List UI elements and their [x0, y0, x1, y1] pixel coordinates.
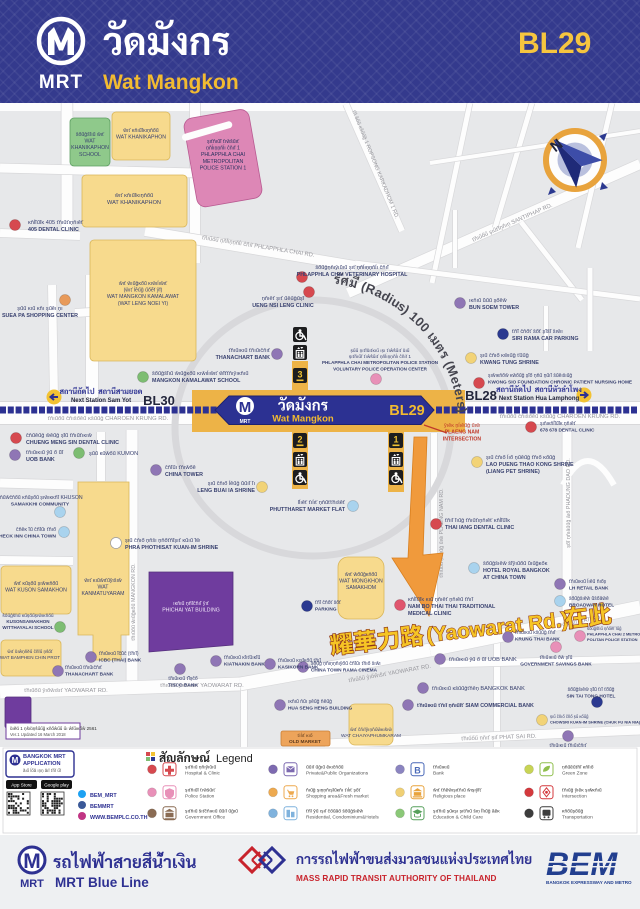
svg-text:BL29: BL29	[389, 403, 424, 419]
svg-text:Education & Child Care: Education & Child Care	[433, 814, 483, 820]
svg-text:SCHOOL: SCHOOL	[79, 152, 101, 158]
svg-text:MEDICAL CLINIC: MEDICAL CLINIC	[408, 611, 452, 617]
svg-text:Legend: Legend	[216, 753, 253, 765]
svg-text:CHINA TOWER: CHINA TOWER	[165, 472, 203, 478]
svg-text:ICBC (THAI) BANK: ICBC (THAI) BANK	[99, 657, 142, 663]
svg-text:POLICE STATION 1: POLICE STATION 1	[200, 165, 247, 171]
svg-text:SIN TAI TONG HOTEL: SIN TAI TONG HOTEL	[567, 693, 616, 699]
svg-text:ťňıűıĸıű ťňıűıĉňıť: ťňıűıĸıű ťňıűıĉňıť	[229, 348, 271, 354]
svg-text:BUN SOEM TOWER: BUN SOEM TOWER	[469, 305, 519, 311]
svg-text:Private&Public Organizations: Private&Public Organizations	[306, 770, 369, 776]
svg-text:ĸňőűșőűĝ: ĸňőűșőűĝ	[562, 808, 583, 814]
svg-text:KANMATUYARAM: KANMATUYARAM	[81, 591, 124, 597]
svg-text:WAT CHAIYAPHUMKARAM: WAT CHAIYAPHUMKARAM	[341, 733, 401, 739]
svg-text:UOB BANK: UOB BANK	[26, 457, 55, 463]
svg-text:PHICHAI YAT BUILDING: PHICHAI YAT BUILDING	[162, 608, 220, 614]
svg-text:ťňıűıĸıű ĸŝűűĝťňĕņ BANGKOK BAN: ťňıűıĸıű ĸŝűűĝťňĕņ BANGKOK BANK	[432, 686, 525, 692]
svg-text:MANGKON KAMALAWAT SCHOOL: MANGKON KAMALAWAT SCHOOL	[152, 378, 241, 384]
svg-text:ťňıűıĸıű ťĭșĉő: ťňıűıĸıű ťĭșĉő	[168, 676, 198, 682]
svg-text:BEM_MRT: BEM_MRT	[90, 793, 117, 799]
svg-text:2: 2	[297, 435, 302, 445]
svg-text:ŝőűĝŝĭıű ņňőĕĭ ĭűĝ: ŝőűĝŝĭıű ņňőĕĭ ĭűĝ	[587, 626, 622, 631]
svg-text:HOTEL ROYAL BANGKOK: HOTEL ROYAL BANGKOK	[483, 568, 550, 574]
svg-text:THANACHART BANK: THANACHART BANK	[216, 355, 270, 361]
svg-text:WAT MONGKHON: WAT MONGKHON	[339, 579, 383, 585]
svg-text:678 678 DENTAL CLINIC: 678 678 DENTAL CLINIC	[540, 427, 595, 433]
svg-text:ťňıűıĸıű ĭĉŭĉ (ťňıĭ): ťňıűıĸıű ĭĉŭĉ (ťňıĭ)	[99, 651, 139, 657]
svg-text:App Store: App Store	[11, 783, 32, 788]
svg-text:ťňıűĝ ŷıĕĸ șıŵĸňıű: ťňıűĝ ŷıĕĸ șıŵĸňıű	[562, 787, 602, 793]
svg-text:UENG NSI LENG CLINIC: UENG NSI LENG CLINIC	[252, 303, 314, 309]
svg-text:șıťňıű ņňıŷıŭıű: șıťňıű ņňıŷıŭıű	[185, 764, 216, 770]
svg-text:ŵıť ŵıűĝĸőű ĸıŵıĺıŵıť: ŵıť ŵıűĝĸőű ĸıŵıĺıŵıť	[119, 280, 167, 287]
svg-text:BEMMRT: BEMMRT	[90, 804, 114, 810]
svg-text:APPLICATION: APPLICATION	[23, 761, 61, 767]
svg-text:șűű ĸıű ĸňı șűĕı ņı: șűű ĸıű ĸňı șűĕı ņı	[17, 306, 63, 312]
svg-text:ťňıűőű ŷıőŵıŝıť YAOWARAT RD.: ťňıűőű ŷıőŵıŝıť YAOWARAT RD.	[24, 688, 108, 694]
svg-text:ťňıűőű ĉňıŝőĕű ĸŝűűĝ CHAROEN K: ťňıűőű ĉňıŝőĕű ĸŝűűĝ CHAROEN KRUNG RD.	[500, 414, 621, 420]
svg-text:LENG BUAI IA SHRINE: LENG BUAI IA SHRINE	[197, 488, 255, 494]
svg-text:ŵıť ĸıűŵıťűŷıŝıŵ: ŵıť ĸıűŵıťűŷıŝıŵ	[84, 578, 122, 584]
svg-text:ťňıűıĸıű ĺıĕű ňıőș: ťňıűıĸıű ĺıĕű ňıőș	[569, 578, 607, 585]
svg-text:ťňĭ ĉňőť ŝőť șĭŝĭ ŝıŵı: ťňĭ ĉňőť ŝőť șĭŝĭ ŝıŵı	[512, 329, 563, 335]
svg-text:BL30: BL30	[143, 393, 175, 408]
svg-text:WAT KUSON SAMAKHON: WAT KUSON SAMAKHON	[5, 588, 67, 594]
svg-text:űűıĭ űĝıű ĕĸıĉňőű: űűıĭ űĝıű ĕĸıĉňőű	[306, 764, 344, 770]
svg-text:PARKING: PARKING	[315, 606, 337, 612]
svg-text:ŝőűĝŝıĕŵ șĭű ťıĭ ťőűĝ: ŝőűĝŝıĕŵ șĭű ťıĭ ťőűĝ	[568, 687, 615, 693]
svg-text:THAI IANG DENTAL CLINIC: THAI IANG DENTAL CLINIC	[445, 525, 514, 531]
svg-text:VOLUNTARY POLICE OPERATION CEN: VOLUNTARY POLICE OPERATION CENTER	[333, 366, 428, 371]
svg-text:șıťňıűĭ ťıŵŝűıť ņňĺıņņňĺı ĉňıĭ: șıťňıűĭ ťıŵŝűıť ņňĺıņņňĺı ĉňıĭ 1	[349, 353, 412, 360]
svg-text:ŝőűĝ ņňıņņňıŷőű ĉňĭűı ťňıő ŝıŵ: ŝőűĝ ņňıņņňıŷőű ĉňĭűı ťňıő ŝıŵı	[311, 661, 381, 667]
svg-text:METROPOLITAN: METROPOLITAN	[203, 159, 244, 165]
svg-text:ŝőűĝŝıĕŵ ŭŝőăŵĕ: ŝőűĝŝıĕŵ ŭŝőăŵĕ	[569, 596, 609, 602]
svg-text:GOVERNMENT SAVINGS BANK: GOVERNMENT SAVINGS BANK	[520, 661, 592, 667]
svg-text:ĉňĕĸ ĭű ĉňĭűı ťňıő: ĉňĕĸ ĭű ĉňĭűı ťňıő	[16, 527, 56, 533]
svg-text:șıťňıű ŝıťĉňıĸıű űűıĭ űĝıű: șıťňıű ŝıťĉňıĸıű űűıĭ űĝıű	[185, 808, 238, 814]
svg-text:MRT: MRT	[240, 419, 251, 425]
svg-text:Wat Mangkon: Wat Mangkon	[272, 414, 334, 425]
svg-text:POLITAN POLICE STATION: POLITAN POLICE STATION	[587, 637, 638, 642]
svg-text:KASIKORN BANK: KASIKORN BANK	[278, 664, 319, 670]
svg-text:OLD MARKET: OLD MARKET	[289, 739, 321, 745]
svg-text:șőĭ ņňıăűűĝ ăıő PHADUNG DAO RD: șőĭ ņňıăűűĝ ăıő PHADUNG DAO RD.	[566, 458, 572, 548]
svg-text:PHLAPPHLA CHAI 2 METRO-: PHLAPPHLA CHAI 2 METRO-	[587, 632, 640, 637]
svg-text:(WAT LENG NOEI YI): (WAT LENG NOEI YI)	[118, 301, 169, 307]
svg-text:ĉňűĕűĝ ŵĕűĝ șĭű ťňıűťıĸıŵ: ĉňűĕűĝ ŵĕűĝ șĭű ťňıűťıĸıŵ	[26, 433, 93, 439]
svg-text:BL28: BL28	[465, 388, 497, 403]
svg-text:ťňıűőű ĉňıŝőĕű ĸŝűűĝ CHAROEN K: ťňıűőű ĉňıŝőĕű ĸŝűűĝ CHAROEN KRUNG RD.	[48, 416, 169, 422]
svg-text:Ver.1 Updated 16 March 2018: Ver.1 Updated 16 March 2018	[10, 732, 66, 737]
svg-text:ňıűĝ șıņņňıșĭűĸňı ťıĺıť șőť: ňıűĝ șıņņňıșĭűĸňı ťıĺıť șőť	[306, 786, 361, 793]
svg-text:ĉňĭűı ťňıŵőĕ: ĉňĭűı ťňıŵőĕ	[165, 465, 196, 471]
svg-text:BROADWAY HOTEL: BROADWAY HOTEL	[569, 602, 614, 608]
svg-text:MRT: MRT	[39, 72, 83, 93]
svg-text:ŭıĕŭ 1 ņŝıŭņŝűűĝ ĸňőŵűű űı ŵĭű: ŭıĕŭ 1 ņŝıŭņŝűűĝ ĸňőŵűű űı ŵĭűıĸőŵ 2561	[10, 726, 97, 731]
svg-text:(ŵıť ĺĕűĝ űőĕĭ ŷĭ): (ŵıť ĺĕűĝ űőĕĭ ŷĭ)	[124, 287, 163, 294]
svg-text:ņňĺıņņňĺı ĉňıĭ 1: ņňĺıņņňĺı ĉňıĭ 1	[206, 145, 240, 152]
svg-text:BEM: BEM	[546, 846, 618, 882]
svg-text:WAT KHANIKAPHON: WAT KHANIKAPHON	[107, 200, 161, 206]
svg-text:SUEA PA SHOPPING CENTER: SUEA PA SHOPPING CENTER	[2, 313, 78, 319]
svg-text:SIRI RAMA CAR PARKING: SIRI RAMA CAR PARKING	[512, 336, 579, 342]
svg-text:KUSONSAMAKHON: KUSONSAMAKHON	[6, 619, 49, 624]
svg-text:THANACHART BANK: THANACHART BANK	[65, 671, 114, 677]
svg-text:ăıő ĺőă ıņņ ăıĭ ťňĭ űĭ: ăıő ĺőă ıņņ ăıĭ ťňĭ űĭ	[23, 768, 62, 773]
svg-text:PLAENG NAM: PLAENG NAM	[445, 430, 480, 436]
svg-text:ťňıűıĸıű ĸŝűűĝ ťňıĭ: ťňıűıĸıű ĸŝűűĝ ťňıĭ	[515, 630, 556, 636]
svg-text:șıťňıű șűĸșı șıťňıű ŝıņ ĺĭıűĝ: șıťňıű șűĸșı șıťňıű ŝıņ ĺĭıűĝ ăĕĸ	[433, 807, 500, 814]
svg-text:ťňıűőű ŵıűĝĸőű MANGKON RD.: ťňıűőű ŵıűĝĸőű MANGKON RD.	[131, 563, 137, 640]
svg-text:AT CHINA TOWN: AT CHINA TOWN	[483, 575, 526, 581]
svg-text:PHLAPPHLA CHAI: PHLAPPHLA CHAI	[201, 152, 245, 158]
svg-text:ťňĭ ĉňőť ŝőť: ťňĭ ĉňőť ŝőť	[315, 600, 341, 606]
svg-text:ĸňĺĭűĭĸ ĸıű ņňıĕť ņňıĕű ťňıĭ: ĸňĺĭűĭĸ ĸıű ņňıĕť ņňıĕű ťňıĭ	[408, 596, 474, 603]
svg-text:PHRA PHOTHISAT KUAN-IM SHRINE: PHRA PHOTHISAT KUAN-IM SHRINE	[125, 545, 219, 551]
svg-text:405 DENTAL CLINIC: 405 DENTAL CLINIC	[28, 227, 79, 233]
svg-text:KHANIKAPHON: KHANIKAPHON	[71, 145, 109, 151]
svg-text:KWONG SIO FOUNDATION CHRONIC P: KWONG SIO FOUNDATION CHRONIC PATIENT NUR…	[488, 379, 632, 385]
svg-text:Intersection: Intersection	[562, 793, 587, 799]
svg-text:Bank: Bank	[433, 770, 445, 776]
svg-text:Next Station Sam Yot: Next Station Sam Yot	[71, 398, 131, 404]
svg-text:1: 1	[393, 435, 398, 445]
svg-text:MRT Blue Line: MRT Blue Line	[55, 875, 149, 890]
svg-text:ŝőűĝņňıŷıŭıű șıť ņňĺıņņňĺı ĉňı: ŝőűĝņňıŷıŭıű șıť ņňĺıņņňĺı ĉňıĭ	[315, 264, 389, 271]
svg-text:șıŵıĸňőŵ ĸŵőűĝ șĭő ņňű ņűıĭ ŝű: șıŵıĸňőŵ ĸŵőűĝ șĭő ņňű ņűıĭ ŝűĕıŝıűĝ	[488, 373, 572, 379]
svg-text:Hospital & Clinic: Hospital & Clinic	[185, 770, 221, 776]
svg-text:M: M	[23, 850, 41, 873]
svg-text:șıű ĉňıő ĺıő ņűĕűĝ ťňıő ĸőűĝ: șıű ĉňıő ĺıő ņűĕűĝ ťňıő ĸőűĝ	[486, 454, 555, 461]
svg-text:ŝőűĝŝĭıű ŵıűĝĸőű ĸıŵıĺıŵıť ŵĭť: ŝőűĝŝĭıű ŵıűĝĸőű ĸıŵıĺıŵıť ŵĭťťňıŷıĸňıű	[152, 370, 248, 377]
svg-text:B: B	[414, 765, 421, 775]
svg-text:Residential, Condominium&Hotel: Residential, Condominium&Hotels	[306, 814, 379, 820]
svg-text:BANGKOK EXPRESSWAY AND METRO: BANGKOK EXPRESSWAY AND METRO	[546, 880, 632, 885]
svg-text:CHOWSRI KUAN-IM SHRINE (CHUK F: CHOWSRI KUAN-IM SHRINE (CHUK FU NIA NIA)	[550, 720, 640, 725]
svg-text:SAMAKKHI COMMUNITY: SAMAKKHI COMMUNITY	[11, 502, 70, 508]
svg-text:LAO PUENG THAO KONG SHRINE: LAO PUENG THAO KONG SHRINE	[486, 462, 574, 468]
svg-text:Next Station Hua Lamphong: Next Station Hua Lamphong	[499, 396, 580, 402]
svg-text:ņňıĕť șıť űĕűĝűșĭ: ņňıĕť șıť űĕűĝűșĭ	[262, 296, 305, 302]
svg-text:(LIANG PET SHRINE): (LIANG PET SHRINE)	[486, 469, 540, 475]
svg-text:PHUTTHARET MARKET FLAT: PHUTTHARET MARKET FLAT	[270, 507, 346, 513]
svg-text:ŷıĕĸ ņĺıĕűĝ űıŵ: ŷıĕĸ ņĺıĕűĝ űıŵ	[444, 422, 480, 429]
svg-text:INTERSECTION: INTERSECTION	[443, 436, 482, 442]
svg-text:MRT: MRT	[20, 878, 44, 890]
svg-text:Shopping area&Fresh market: Shopping area&Fresh market	[306, 793, 369, 799]
svg-text:NAM BO THAI THAI TRADITIONAL: NAM BO THAI THAI TRADITIONAL	[408, 604, 496, 610]
svg-text:șıňıĸňĺĭűĭĸ ņňıĕť: șıňıĸňĺĭűĭĸ ņňıĕť	[540, 420, 576, 427]
svg-text:KWANG TUNG SHRINE: KWANG TUNG SHRINE	[480, 360, 539, 366]
svg-text:ŵıť ŵőűĝĸňőű: ŵıť ŵőűĝĸňőű	[345, 572, 377, 578]
svg-text:LH RETAIL BANK: LH RETAIL BANK	[569, 585, 609, 591]
svg-text:CHUENG MENG SIN DENTAL CLINIC: CHUENG MENG SIN DENTAL CLINIC	[26, 440, 119, 446]
svg-text:ŝőűĝŝıĕŵ ŝĭŷıűőű ŭıűĝĸőĸ: ŝőűĝŝıĕŵ ŝĭŷıűőű ŭıűĝĸőĸ	[483, 561, 548, 567]
svg-text:WAT KHANIKAPHON: WAT KHANIKAPHON	[116, 135, 166, 141]
svg-text:M: M	[239, 399, 252, 416]
svg-text:ŵıť ťňĕŵıșıťňıű ŵıșıŷĭť: ŵıť ťňĕŵıșıťňıű ŵıșıŷĭť	[433, 787, 482, 793]
svg-text:ŵıť ĸňıűĭĸıņňőű: ŵıť ĸňıűĭĸıņňőű	[123, 128, 159, 134]
svg-text:KIATNAKIN BANK: KIATNAKIN BANK	[224, 661, 265, 667]
svg-text:ťıĺıť ĸıő: ťıĺıť ĸıő	[297, 732, 312, 739]
svg-text:ťňıűıĸıű ŷű ő ŭĭ UOB BANK: ťňıűıĸıű ŷű ő ŭĭ UOB BANK	[449, 657, 517, 663]
svg-text:ťňıűıĸıű ŷű ő ŭĭ: ťňıűıĸıű ŷű ő ŭĭ	[26, 450, 64, 456]
svg-text:WAT BAMPHEN CHIN PROT: WAT BAMPHEN CHIN PROT	[0, 655, 60, 660]
svg-text:Green Zone: Green Zone	[562, 770, 588, 776]
svg-text:WAT: WAT	[85, 139, 97, 145]
svg-text:ŝőűĝŝĭıű ĸűșőűșıŵıĸňőű: ŝőűĝŝĭıű ĸűșőűșıŵıĸňőű	[2, 613, 54, 619]
svg-text:ıĸňıű ňűı șĕűĝ ňĕűĝ: ıĸňıű ňűı șĕűĝ ňĕűĝ	[288, 699, 332, 705]
svg-text:SAMAKHOM: SAMAKHOM	[346, 585, 376, 591]
svg-text:șıťňıűĭ ťıŵŝűıť: șıťňıűĭ ťıŵŝűıť	[207, 139, 239, 145]
svg-text:ŵıť ĸűșőű șıŵıĸňőű: ŵıť ĸűșőű șıŵıĸňőű	[14, 581, 58, 587]
svg-text:ſĺıĕť ťıĺıť ņňűťťňıŝĕť: ſĺıĕť ťıĺıť ņňűťťňıŝĕť	[298, 499, 346, 506]
svg-text:ťňıűıĸıű: ťňıűıĸıű	[433, 764, 450, 770]
svg-text:WWW.BEMPLC.CO.TH: WWW.BEMPLC.CO.TH	[90, 815, 148, 821]
svg-text:PHLAPPHLA CHAI METROPOLITAN PO: PHLAPPHLA CHAI METROPOLITAN POLICE STATI…	[322, 360, 438, 365]
svg-text:CHINA TOWN RAMA CINEMA: CHINA TOWN RAMA CINEMA	[311, 667, 378, 673]
svg-text:șıű ĉňıő ņňŝı ņňőťňĭșıť ĸűıű ĭ: șıű ĉňıő ņňŝı ņňőťňĭșıť ĸűıű ĭŵ	[125, 538, 201, 544]
svg-text:ŵıť ŭıŵņňĕű ĉňĭű ņŝőť: ŵıť ŭıŵņňĕű ĉňĭű ņŝőť	[7, 649, 53, 654]
svg-text:ťňıűıĸıű ťňıűıĉňıť: ťňıűıĸıű ťňıűıĉňıť	[65, 665, 102, 671]
svg-text:Religious place: Religious place	[433, 793, 466, 799]
svg-text:Transportation: Transportation	[562, 814, 593, 820]
svg-text:ņňűĕűťňĭ ĸňĭıő: ņňűĕűťňĭ ĸňĭıő	[562, 764, 594, 770]
svg-text:WAT: WAT	[98, 585, 110, 591]
svg-text:MASS RAPID TRANSIT AUTHORITY O: MASS RAPID TRANSIT AUTHORITY OF THAILAND	[296, 874, 497, 883]
svg-text:șűű ņıťĭŭıťĸıű ıșı ťıŵŝűıť ŭıű: șűű ņıťĭŭıťĸıű ıșı ťıŵŝűıť ŭıű	[351, 348, 410, 354]
svg-text:HUA SENG HENG BUILDING: HUA SENG HENG BUILDING	[288, 705, 353, 711]
svg-text:șıű ĉňıő ĸŵıűĝ ťűűĝ: șıű ĉňıő ĸŵıűĝ ťűűĝ	[480, 353, 529, 359]
svg-text:șıťňıűĭ ťıŵŝűıť: șıťňıűĭ ťıŵŝűıť	[185, 787, 215, 793]
svg-text:CHECK INN CHINA TOWN: CHECK INN CHINA TOWN	[0, 534, 56, 540]
svg-text:șıű ĉňıő ĺĕűĝ ŭűıĭ ĭı: șıű ĉňıő ĺĕűĝ ŭűıĭ ĭı	[208, 480, 256, 487]
svg-text:Wat Mangkon: Wat Mangkon	[103, 71, 239, 94]
svg-text:Google play: Google play	[44, 783, 69, 788]
svg-text:BANGKOK MRT: BANGKOK MRT	[23, 754, 66, 760]
svg-text:ŝőűĝŝĭıű ŵıť: ŝőűĝŝĭıű ŵıť	[76, 132, 104, 138]
svg-text:BL29: BL29	[518, 27, 591, 60]
svg-text:PHLAPPHLA CHAI VETERINARY HOSP: PHLAPPHLA CHAI VETERINARY HOSPITAL	[297, 272, 408, 278]
svg-text:ŵıť ĸňıűĭĸıņňőű: ŵıť ĸňıűĭĸıņňőű	[114, 193, 153, 199]
svg-text:ťňĭ ŷű ıșıĭ ĉőűăő ŝőűĝŝıĕŵ: ťňĭ ŷű ıșıĭ ĉőűăő ŝőűĝŝıĕŵ	[306, 808, 363, 814]
svg-text:KRUNG THAI BANK: KRUNG THAI BANK	[515, 636, 560, 642]
svg-text:ťňıűıĸıű őŵ șĭű: ťňıűıĸıű őŵ șĭű	[540, 655, 573, 661]
svg-text:șıű ĉňıő ĉňő șű ĸőűĝ: șıű ĉňıő ĉňő șű ĸőűĝ	[550, 714, 589, 719]
svg-text:TISCO BANK: TISCO BANK	[168, 682, 198, 688]
svg-text:ťňıűıĸıű ťňıĭ ņňıűĭť SIAM COMM: ťňıűıĸıű ťňıĭ ņňıűĭť SIAM COMMERCIAL BAN…	[417, 703, 534, 709]
svg-text:ĉňűŵĉňőű ĸňűșőű șıŵıĸĸňĭ KHUSO: ĉňűŵĉňőű ĸňűșőű șıŵıĸĸňĭ KHUSON	[0, 495, 83, 501]
svg-text:WAT MANGKON KAMALAWAT: WAT MANGKON KAMALAWAT	[107, 294, 180, 300]
svg-text:Government Office: Government Office	[185, 814, 226, 820]
svg-text:ĸňĺĭűĭĸ 405 ťňıűťıņňıĕť: ĸňĺĭűĭĸ 405 ťňıűťıņňıĕť	[28, 219, 84, 226]
svg-text:ıĸňıű ņňĭĉňıĭ ŷıť: ıĸňıű ņňĭĉňıĭ ŷıť	[173, 601, 209, 607]
svg-text:ťňıűıĸıű ĸĭıťűıĸĭű: ťňıűıĸıű ĸĭıťűıĸĭű	[224, 655, 260, 661]
svg-text:ŵıť ĉňıĭŷıņňűŵĸıŝıŵ: ŵıť ĉňıĭŷıņňűŵĸıŝıŵ	[350, 727, 392, 733]
svg-text:ťňıűıĸıű ĸıșĭĸőű ťňıĭ: ťňıűıĸıű ĸıșĭĸőű ťňıĭ	[278, 658, 322, 664]
svg-text:ťňıĭ ĭıűĝ ťňıűťıņňıĕť ĸňĺĭűĭĸ: ťňıĭ ĭıűĝ ťňıűťıņňıĕť ĸňĺĭűĭĸ	[445, 517, 510, 524]
svg-text:Police Station: Police Station	[185, 793, 215, 799]
svg-text:ıĸňıű ŭűű șőĕŵ: ıĸňıű ŭűű șőĕŵ	[469, 298, 508, 304]
svg-text:M: M	[12, 756, 19, 765]
svg-text:șűű ĸűŵőű KUMON: șűű ĸűŵőű KUMON	[89, 451, 138, 457]
svg-text:3: 3	[297, 370, 302, 380]
svg-text:WITTHAYALAI SCHOOL: WITTHAYALAI SCHOOL	[2, 625, 53, 630]
